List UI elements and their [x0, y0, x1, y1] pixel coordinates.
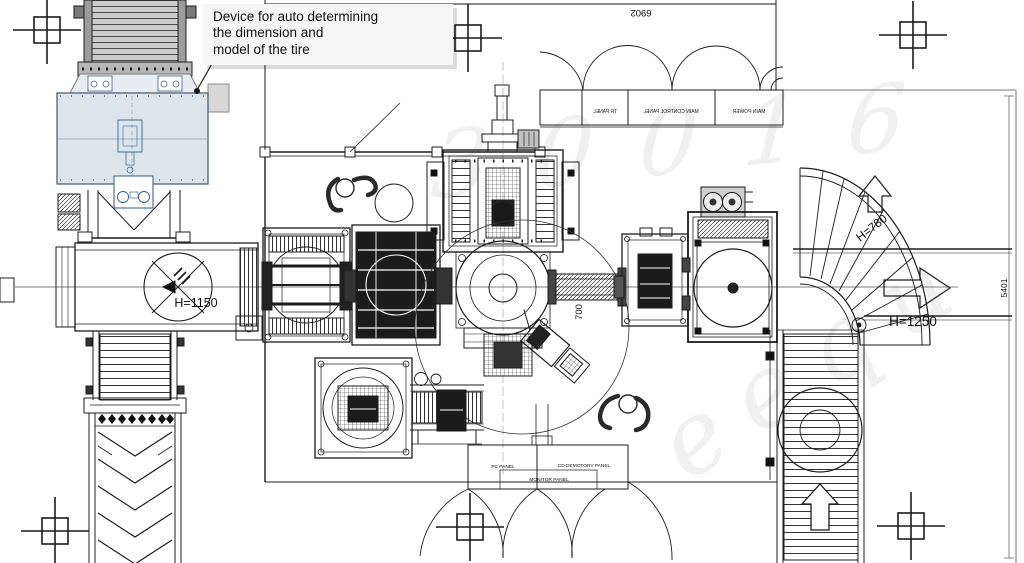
pc-panel-label: PC PANEL	[491, 464, 515, 470]
measuring-conveyor: H=1150	[0, 243, 262, 340]
dim-700-label: 700	[574, 304, 585, 320]
operator-figure-top	[328, 178, 375, 211]
center-column	[482, 85, 539, 152]
dim-5401-label: 5401	[999, 278, 1009, 297]
dim-6902-label: 6902	[630, 7, 651, 18]
infeed-conveyor	[74, 0, 196, 76]
panel-label-main-control: MAIN CONTROL PANEL	[643, 109, 699, 115]
panel-label-tr: TR PANEL	[593, 109, 617, 115]
operator-figure-bottom	[600, 395, 648, 430]
monitor-panel-label: MONITOR PANEL	[529, 477, 569, 483]
floor-plan-canvas: 30016 eequ	[0, 0, 1024, 563]
down-roller-conveyor	[86, 331, 184, 400]
exit-conveyor: H=1250	[793, 249, 1012, 329]
registration-mark	[21, 497, 89, 563]
panel-door-arcs	[540, 46, 783, 91]
callout-note: Device for auto determining the dimensio…	[203, 4, 453, 65]
outfeed-roller-conveyor	[766, 330, 864, 563]
brush-roller	[98, 414, 174, 424]
transfer-machine	[410, 373, 484, 445]
dim-h1250-label: H=1250	[889, 314, 937, 329]
demotory-panel-label: CD DEMOTORY PANEL	[558, 463, 611, 469]
registration-mark	[13, 0, 81, 64]
callout-line-2: the dimension and	[213, 25, 445, 41]
stencil-machine	[315, 358, 412, 458]
door-swing-arcs	[420, 482, 672, 560]
center-test-station	[427, 85, 579, 348]
registration-mark	[879, 1, 947, 69]
lift-block	[484, 334, 532, 376]
plan-drawing: 6902 5401	[0, 0, 1024, 563]
panel-label-main-power: MAIN POWER	[732, 109, 765, 115]
device-side-tab	[208, 84, 229, 112]
panel-connector	[532, 404, 552, 445]
registration-mark	[436, 493, 504, 561]
tread-station	[344, 225, 452, 345]
callout-line-1: Device for auto determining	[213, 9, 445, 25]
dim-h780-label: H=780	[853, 211, 890, 244]
inspection-station	[682, 187, 777, 342]
chevron-belt-conveyor	[84, 398, 186, 563]
callout-line-3: model of the tire	[213, 42, 445, 58]
right-dimension: 5401	[999, 96, 1014, 558]
electrical-panel-row: TR PANEL MAIN CONTROL PANEL MAIN POWER	[540, 46, 783, 128]
registration-mark	[877, 492, 945, 560]
bead-check-station	[262, 228, 352, 342]
tire-measuring-device	[57, 74, 229, 208]
tire-outline-staging	[375, 184, 413, 222]
dim-h1150-label: H=1150	[174, 296, 217, 310]
